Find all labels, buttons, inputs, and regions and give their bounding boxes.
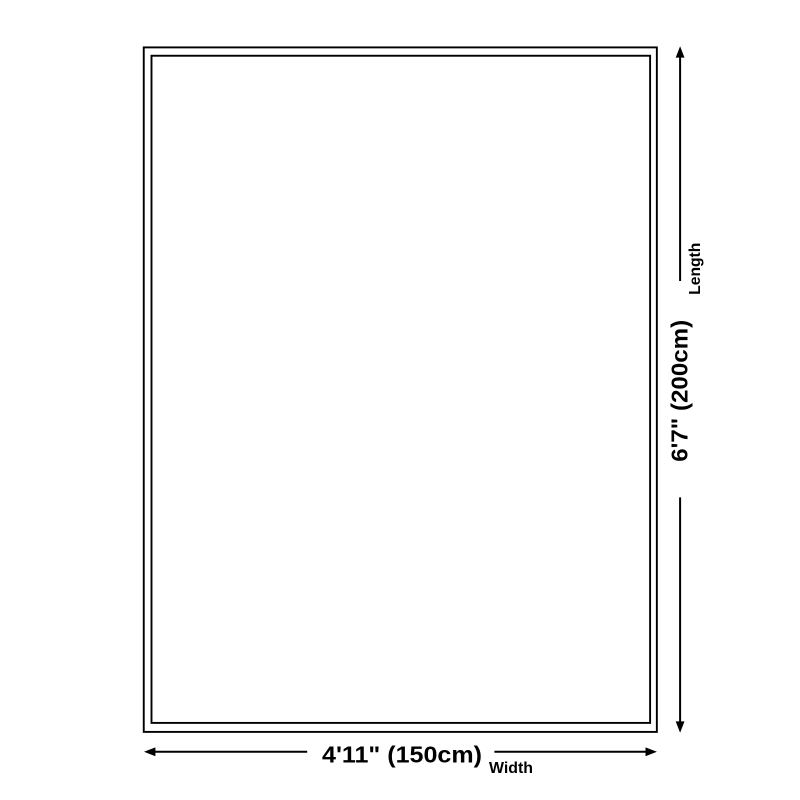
svg-text:Width: Width [489,760,533,777]
svg-text:6'7" (200cm): 6'7" (200cm) [667,320,693,462]
svg-text:Length: Length [687,243,704,295]
svg-text:4'11" (150cm): 4'11" (150cm) [322,742,482,768]
